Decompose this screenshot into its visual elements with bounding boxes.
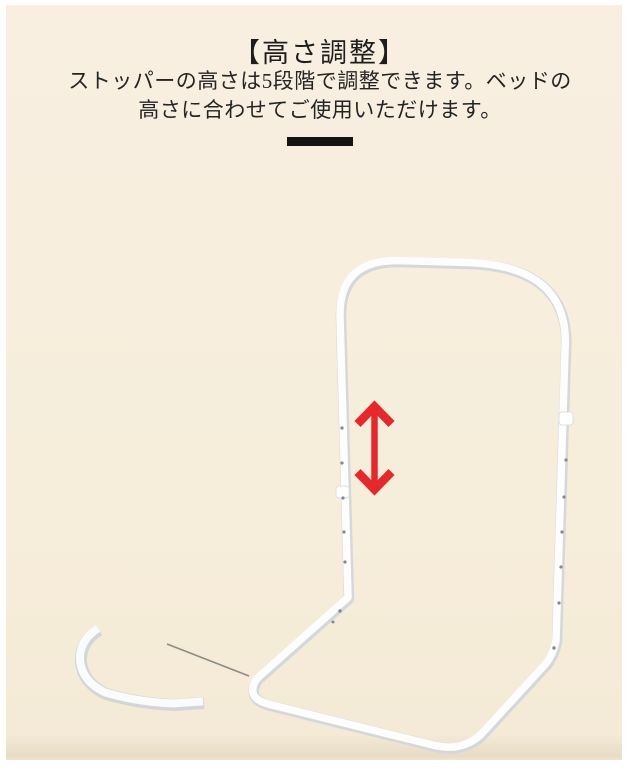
frame-tube [253,261,566,748]
bed-rail-frame [253,261,573,749]
product-info-image: 【高さ調整】 ストッパーの高さは5段階で調整できます。ベッドの 高さに合わせてご… [0,0,640,773]
frame-tube-shadow [254,262,567,749]
product-illustration [0,0,640,773]
left-tube-sleeve [336,486,349,498]
fixing-pin [167,644,249,676]
adjustment-holes [332,426,568,649]
detached-rail-hook [80,628,204,705]
height-adjust-arrow-icon [358,407,392,490]
right-tube-sleeve [559,412,573,425]
